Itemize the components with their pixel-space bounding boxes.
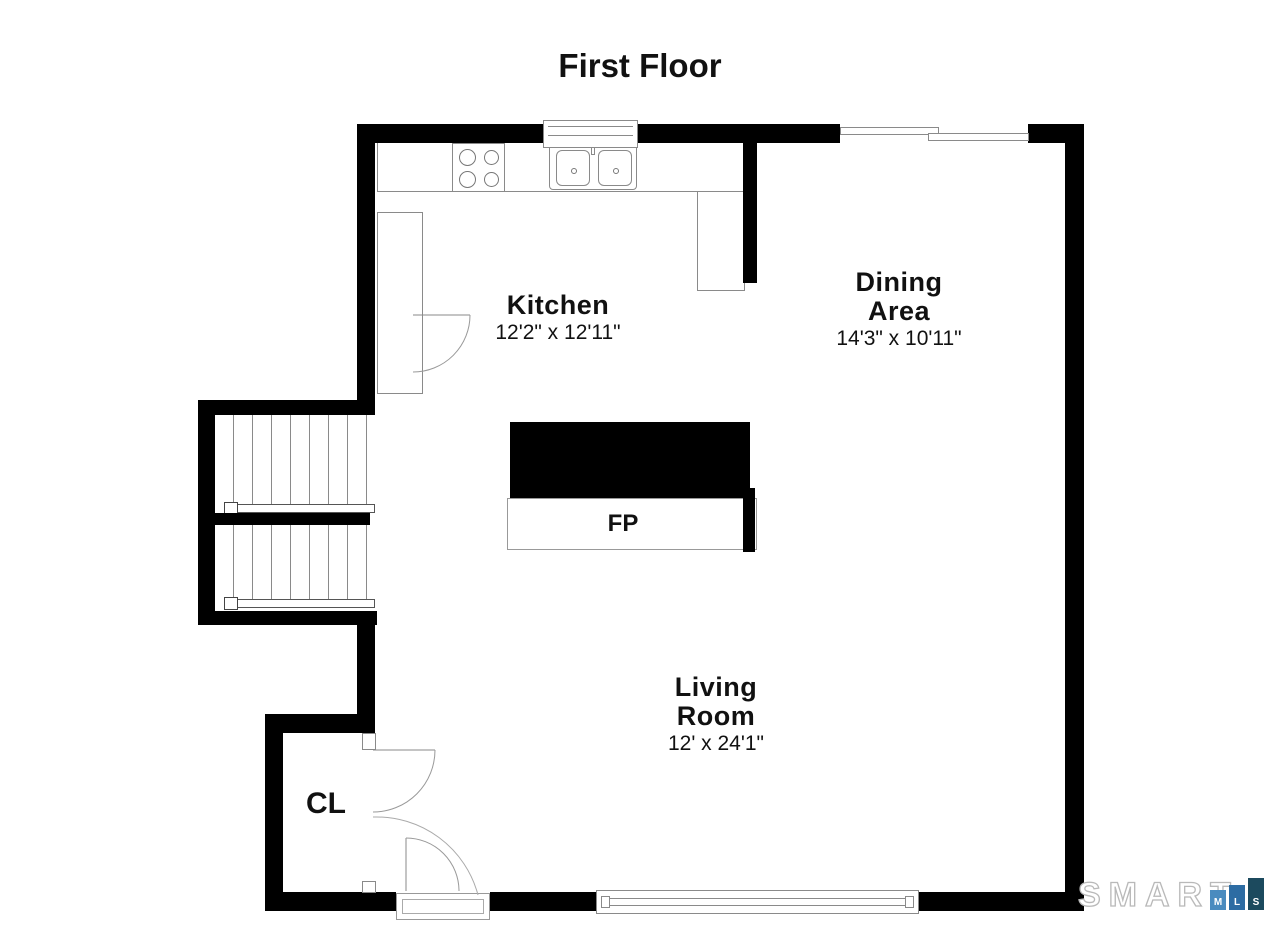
stair-handrail-lower (227, 599, 375, 608)
stair-treads-upper (215, 415, 375, 505)
living-label: Living Room 12' x 24'1" (616, 673, 816, 756)
entry-door-arc-outer (373, 817, 478, 895)
sink-drain-icon (613, 168, 619, 174)
burner-icon (484, 150, 499, 165)
window-jamb (905, 896, 914, 908)
wall-bottom-right (918, 892, 1084, 911)
wall-left-upper (357, 124, 375, 415)
kitchen-label: Kitchen 12'2" x 12'11" (458, 291, 658, 345)
wall-top-left (357, 124, 543, 143)
dining-name-line2: Area (799, 297, 999, 326)
living-dims: 12' x 24'1" (616, 733, 816, 756)
burner-icon (459, 171, 476, 188)
dining-name-line1: Dining (799, 268, 999, 297)
stair-newel-lower (224, 597, 238, 610)
kitchen-counter-leg (697, 192, 745, 291)
stair-wall-mid (198, 513, 370, 525)
wall-bottom-mid (490, 892, 597, 911)
living-name-line2: Room (616, 702, 816, 731)
stair-treads-lower (215, 525, 375, 599)
kitchen-partition-wall (743, 143, 757, 283)
fireplace-stub-wall (743, 488, 755, 552)
smartmls-logo-square-l: L (1229, 885, 1245, 910)
floor-title: First Floor (0, 48, 1280, 84)
closet-wall-left (265, 714, 283, 911)
stair-wall-bottom (198, 611, 377, 625)
kitchen-dims: 12'2" x 12'11" (458, 322, 658, 345)
dining-label: Dining Area 14'3" x 10'11" (799, 268, 999, 351)
closet-door-jamb-top (362, 733, 376, 750)
dining-dims: 14'3" x 10'11" (799, 328, 999, 351)
floorplan-page: { "title": "First Floor", "rooms": { "ki… (0, 0, 1280, 931)
stair-wall-top (198, 400, 375, 415)
smartmls-logo-square-s: S (1248, 878, 1264, 910)
wall-right (1065, 124, 1084, 911)
fireplace-hearth: FP (507, 498, 757, 550)
closet-label: CL (286, 788, 366, 820)
sliding-door-panel-b (928, 133, 1029, 141)
sink-drain-icon (571, 168, 577, 174)
burner-icon (484, 172, 499, 187)
kitchen-name: Kitchen (458, 291, 658, 320)
fireplace-label: FP (508, 499, 756, 549)
pantry-closet (377, 212, 423, 394)
entry-threshold-inner (402, 899, 484, 914)
living-room-window-panes (604, 898, 911, 906)
sliding-door-panel-a (840, 127, 939, 135)
stair-handrail-upper (227, 504, 375, 513)
fireplace-firebox (510, 422, 750, 498)
living-name-line1: Living (616, 673, 816, 702)
window-jamb (601, 896, 610, 908)
burner-icon (459, 149, 476, 166)
closet-door-arc (373, 750, 435, 812)
wall-top-mid (638, 124, 840, 143)
kitchen-window-panes (548, 126, 633, 136)
wall-bottom-left (265, 892, 396, 911)
closet-door-jamb-bottom (362, 881, 376, 893)
entry-door-arc (406, 838, 459, 891)
smartmls-logo-square-m: M (1210, 890, 1226, 910)
